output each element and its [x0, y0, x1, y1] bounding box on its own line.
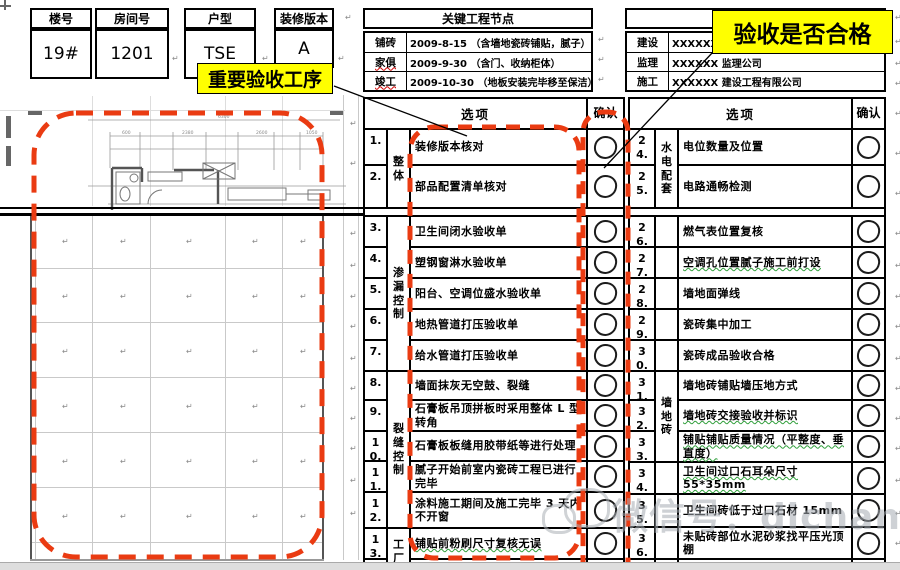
option-text: 墙地砖交接验收并标识: [679, 401, 853, 432]
wall-stub: [6, 116, 11, 138]
option-text: 墙面抹灰无空鼓、裂缝: [411, 372, 588, 401]
confirm-cell: [588, 372, 623, 401]
wall-stub: [6, 146, 11, 166]
confirm-circle[interactable]: [592, 372, 619, 399]
option-text: 空调孔位置腻子施工前打设: [679, 248, 853, 279]
paragraph-mark: ↵: [252, 458, 259, 466]
confirm-circle[interactable]: [592, 218, 619, 245]
unit-field-label: 装修版本: [274, 8, 334, 29]
svg-text:2600: 2600: [256, 130, 268, 136]
party-row: 施工XXXXXX 建设工程有限公司: [627, 71, 884, 90]
row-number: 3.: [365, 217, 388, 248]
group-label: [656, 341, 679, 372]
paragraph-mark: ↵: [895, 60, 900, 68]
page-break-band: [630, 209, 884, 217]
floor-plan-drawing: 6002380 26001050 6300: [78, 108, 353, 218]
row-number: 11.: [365, 462, 388, 493]
row-number: 2.: [365, 166, 388, 209]
paragraph-mark: ↵: [895, 355, 900, 363]
options-header: 选项: [365, 99, 588, 130]
paragraph-mark: ↵: [62, 513, 69, 521]
gridline: [30, 559, 324, 561]
gridline: [32, 487, 322, 488]
row-number: 33.: [630, 432, 656, 463]
confirm-circle[interactable]: [855, 497, 882, 524]
row-number: 29.: [630, 310, 656, 341]
unit-field-label: 户型: [184, 8, 256, 29]
option-text: 塑钢窗淋水验收单: [411, 248, 588, 279]
row-number: 32.: [630, 401, 656, 432]
paragraph-mark: ↵: [62, 348, 69, 356]
paragraph-mark: ↵: [598, 56, 605, 64]
group-label: [656, 310, 679, 341]
callout-important-process-label: 重要验收工序: [208, 65, 322, 92]
paragraph-mark: ↵: [186, 238, 193, 246]
confirm-cell: [853, 495, 884, 528]
party-role: 施工: [627, 72, 669, 90]
page-corner-mark: [4, 0, 6, 10]
milestone-value: 2009-10-30 （地板安装完毕移至保洁）: [407, 74, 591, 89]
confirm-header: 确认: [853, 99, 884, 130]
paragraph-mark: ↵: [895, 262, 900, 270]
paragraph-mark: ↵: [350, 323, 357, 331]
paragraph-mark: ↵: [895, 540, 900, 548]
confirm-circle[interactable]: [855, 372, 882, 399]
gridline: [32, 542, 322, 543]
confirm-cell: [853, 463, 884, 495]
paragraph-mark: ↵: [895, 415, 900, 423]
party-role: 建设: [627, 33, 669, 52]
option-text: 卫生间闭水验收单: [411, 217, 588, 248]
unit-field-value: 19#: [30, 29, 92, 79]
paragraph-mark: ↵: [300, 403, 307, 411]
group-label: [656, 463, 679, 495]
confirm-circle[interactable]: [855, 280, 882, 307]
confirm-cell: [588, 529, 623, 560]
paragraph-mark: ↵: [895, 190, 900, 198]
party-role: 监理: [627, 53, 669, 71]
milestones-title: 关键工程节点: [363, 8, 593, 29]
gridline: [92, 216, 93, 560]
gridline: [32, 432, 322, 433]
paragraph-mark: ↵: [62, 403, 69, 411]
wall-stub: [330, 111, 343, 115]
paragraph-mark: ↵: [62, 238, 69, 246]
confirm-cell: [853, 310, 884, 341]
paragraph-mark: ↵: [120, 293, 127, 301]
paragraph-mark: ↵: [895, 293, 900, 301]
confirm-cell: [588, 432, 623, 462]
options-header: 选项: [630, 99, 853, 130]
paragraph-mark: ↵: [895, 38, 900, 46]
svg-text:6300: 6300: [218, 114, 230, 120]
confirm-circle[interactable]: [592, 311, 619, 338]
group-label: [656, 528, 679, 560]
milestone-row: 家俱2009-9-30 （含门、收纳柜体）: [365, 52, 591, 71]
option-text: 未贴砖部位水泥砂浆找平压光顶棚: [679, 528, 853, 560]
section-divider-line: [0, 207, 363, 209]
confirm-cell: [588, 217, 623, 248]
confirm-cell: [853, 166, 884, 209]
paragraph-mark: ↵: [62, 293, 69, 301]
option-text: 部品配置清单核对: [411, 166, 588, 209]
paragraph-mark: ↵: [895, 510, 900, 518]
confirm-cell: [853, 432, 884, 463]
gridline: [35, 216, 36, 560]
option-text: 石膏板板缝用胶带纸等进行处理: [411, 432, 588, 462]
paragraph-mark: ↵: [895, 385, 900, 393]
option-text: 装修版本核对: [411, 130, 588, 166]
paragraph-mark: ↵: [895, 110, 900, 118]
paragraph-mark: ↵: [895, 14, 900, 22]
row-number: 10.: [365, 432, 388, 462]
paragraph-mark: ↵: [338, 55, 345, 63]
paragraph-mark: ↵: [350, 293, 357, 301]
confirm-cell: [853, 217, 884, 248]
confirm-cell: [853, 341, 884, 372]
confirm-cell: [588, 248, 623, 279]
paragraph-mark: ↵: [895, 323, 900, 331]
paragraph-mark: ↵: [345, 14, 352, 22]
group-label: [656, 495, 679, 528]
confirm-circle[interactable]: [592, 463, 619, 490]
row-number: 1.: [365, 130, 388, 166]
confirm-cell: [853, 528, 884, 560]
paragraph-mark: ↵: [172, 55, 179, 63]
confirm-circle[interactable]: [592, 134, 619, 161]
party-name: XXXXXX 监理公司: [669, 55, 884, 70]
confirm-circle[interactable]: [592, 433, 619, 460]
row-number: 30.: [630, 341, 656, 372]
unit-field-value: 1201: [95, 29, 169, 79]
paragraph-mark: ↵: [300, 458, 307, 466]
group-label: 整体: [388, 130, 411, 209]
confirm-cell: [588, 341, 623, 372]
confirm-cell: [588, 493, 623, 529]
option-text: 电路通畅检测: [679, 166, 853, 209]
group-label: 裂缝控制: [388, 372, 411, 529]
confirm-cell: [588, 462, 623, 493]
paragraph-mark: ↵: [120, 238, 127, 246]
confirm-circle[interactable]: [592, 402, 619, 429]
confirm-cell: [588, 166, 623, 209]
paragraph-mark: ↵: [895, 445, 900, 453]
callout-acceptance-pass-label: 验收是否合格: [734, 15, 872, 49]
confirm-circle[interactable]: [855, 433, 882, 460]
row-number: 27.: [630, 248, 656, 279]
milestone-row: 铺砖2009-8-15 （含墙地瓷砖铺贴，腻子）: [365, 33, 591, 52]
row-number: 26.: [630, 217, 656, 248]
milestones-table: 关键工程节点 铺砖2009-8-15 （含墙地瓷砖铺贴，腻子）家俱2009-9-…: [363, 8, 593, 92]
group-label: [656, 217, 679, 248]
paragraph-mark: ↵: [62, 458, 69, 466]
row-number: 25.: [630, 166, 656, 209]
gridline: [150, 216, 151, 560]
confirm-cell: [853, 279, 884, 310]
confirm-circle[interactable]: [592, 280, 619, 307]
gridline: [282, 216, 283, 560]
row-number: 24.: [630, 130, 656, 166]
paragraph-mark: ↵: [186, 293, 193, 301]
paragraph-mark: ↵: [252, 293, 259, 301]
gridline: [32, 268, 322, 269]
paragraph-mark: ↵: [252, 403, 259, 411]
group-label: [656, 279, 679, 310]
section-divider-line: [0, 213, 363, 216]
confirm-circle[interactable]: [592, 530, 619, 557]
paragraph-mark: ↵: [252, 513, 259, 521]
paragraph-mark: ↵: [350, 477, 357, 485]
option-text: 卫生间砖低于过口石材 15mm: [679, 495, 853, 528]
group-label: 水电配套: [656, 130, 679, 209]
row-number: 28.: [630, 279, 656, 310]
confirm-cell: [853, 130, 884, 166]
svg-text:2380: 2380: [182, 130, 194, 136]
option-text: 铺贴铺贴质量情况（平整度、垂直度）: [679, 432, 853, 463]
confirm-cell: [853, 248, 884, 279]
confirm-cell: [853, 401, 884, 432]
confirm-circle[interactable]: [855, 134, 882, 161]
paragraph-mark: ↵: [350, 385, 357, 393]
unit-field-label: 楼号: [30, 8, 92, 29]
document-page: ↵↵↵↵↵↵↵↵↵↵↵↵↵↵↵↵↵↵↵↵↵↵↵↵↵↵↵↵↵↵↵↵↵↵↵↵↵↵↵↵…: [0, 0, 900, 570]
paragraph-mark: ↵: [120, 513, 127, 521]
paragraph-mark: ↵: [598, 36, 605, 44]
gridline: [32, 377, 322, 378]
checklist-table: 选项确认整体渗漏控制裂缝控制工厂1.装修版本核对2.部品配置清单核对3.卫生间闭…: [363, 97, 625, 570]
option-text: 瓷砖集中加工: [679, 310, 853, 341]
confirm-circle[interactable]: [855, 311, 882, 338]
confirm-circle[interactable]: [592, 342, 619, 369]
paragraph-mark: ↵: [186, 348, 193, 356]
option-text: 阳台、空调位盛水验收单: [411, 279, 588, 310]
paragraph-mark: ↵: [598, 76, 605, 84]
confirm-circle[interactable]: [855, 342, 882, 369]
row-number: 31.: [630, 372, 656, 401]
milestone-label: 竣工: [365, 72, 407, 90]
confirm-circle[interactable]: [855, 530, 882, 557]
confirm-circle[interactable]: [592, 173, 619, 200]
paragraph-mark: ↵: [350, 415, 357, 423]
checklist-table: 选项确认水电配套墙地砖24.电位数量及位置25.电路通畅检测26.燃气表位置复核…: [628, 97, 886, 570]
confirm-cell: [588, 130, 623, 166]
row-number: 12.: [365, 493, 388, 529]
option-text: 腻子开始前室内瓷砖工程已进行完毕: [411, 462, 588, 493]
confirm-circle[interactable]: [855, 465, 882, 492]
paragraph-mark: ↵: [350, 262, 357, 270]
paragraph-mark: ↵: [262, 55, 269, 63]
confirm-cell: [853, 372, 884, 401]
paragraph-mark: ↵: [895, 230, 900, 238]
paragraph-mark: ↵: [186, 458, 193, 466]
paragraph-mark: ↵: [300, 348, 307, 356]
paragraph-mark: ↵: [895, 477, 900, 485]
group-label: 墙地砖: [656, 372, 679, 463]
milestone-label: 家俱: [365, 53, 407, 71]
paragraph-mark: ↵: [300, 293, 307, 301]
option-text: 给水管道打压验收单: [411, 341, 588, 372]
option-text: 卫生间过口石耳朵尺寸 55*35mm: [679, 463, 853, 495]
confirm-header: 确认: [588, 99, 623, 130]
paragraph-mark: ↵: [350, 355, 357, 363]
milestone-value: 2009-8-15 （含墙地瓷砖铺贴，腻子）: [407, 35, 591, 50]
paragraph-mark: ↵: [350, 510, 357, 518]
row-number: 13.: [365, 529, 388, 560]
gridline: [322, 216, 324, 560]
confirm-circle[interactable]: [855, 402, 882, 429]
option-text: 燃气表位置复核: [679, 217, 853, 248]
option-text: 涂料施工期间及施工完毕 3 天内不开窗: [411, 493, 588, 529]
svg-text:1050: 1050: [306, 130, 318, 136]
row-number: 8.: [365, 372, 388, 401]
paragraph-mark: ↵: [300, 238, 307, 246]
confirm-circle[interactable]: [855, 173, 882, 200]
option-text: 铺贴前粉刷尺寸复核无误: [411, 529, 588, 560]
row-number: 7.: [365, 341, 388, 372]
party-row: 监理XXXXXX 监理公司: [627, 52, 884, 71]
paragraph-mark: ↵: [120, 348, 127, 356]
row-number: 9.: [365, 401, 388, 432]
page-break-band: [365, 209, 623, 217]
confirm-circle[interactable]: [592, 497, 619, 524]
option-text: 墙地砖铺贴墙压地方式: [679, 372, 853, 401]
party-name: XXXXXX 建设工程有限公司: [669, 74, 884, 89]
group-label: 渗漏控制: [388, 217, 411, 372]
option-text: 墙地面弹线: [679, 279, 853, 310]
milestone-row: 竣工2009-10-30 （地板安装完毕移至保洁）: [365, 71, 591, 90]
confirm-cell: [588, 279, 623, 310]
paragraph-mark: ↵: [120, 458, 127, 466]
paragraph-mark: ↵: [186, 403, 193, 411]
gridline: [225, 216, 226, 560]
confirm-cell: [588, 310, 623, 341]
group-label: [656, 248, 679, 279]
wall-stub: [28, 111, 42, 115]
paragraph-mark: ↵: [252, 348, 259, 356]
confirm-circle[interactable]: [592, 249, 619, 276]
confirm-circle[interactable]: [855, 218, 882, 245]
paragraph-mark: ↵: [895, 80, 900, 88]
option-text: 电位数量及位置: [679, 130, 853, 166]
paragraph-mark: ↵: [350, 230, 357, 238]
callout-important-process: 重要验收工序: [197, 63, 333, 94]
callout-acceptance-pass: 验收是否合格: [712, 10, 893, 54]
paragraph-mark: ↵: [895, 150, 900, 158]
milestone-label: 铺砖: [365, 33, 407, 52]
confirm-circle[interactable]: [855, 249, 882, 276]
option-text: 石膏板吊顶拼板时采用整体 L 型转角: [411, 401, 588, 432]
gridline: [358, 95, 359, 560]
paragraph-mark: ↵: [350, 445, 357, 453]
row-number: 36.: [630, 528, 656, 560]
option-text: 地热管道打压验收单: [411, 310, 588, 341]
gridline: [30, 216, 32, 560]
gridline: [32, 322, 322, 323]
confirm-cell: [588, 401, 623, 432]
option-text: 瓷砖成品验收合格: [679, 341, 853, 372]
paragraph-mark: ↵: [252, 238, 259, 246]
row-number: 35.: [630, 495, 656, 528]
paragraph-mark: ↵: [120, 403, 127, 411]
row-number: 34.: [630, 463, 656, 495]
scrollbar-track[interactable]: [0, 562, 900, 570]
row-number: 4.: [365, 248, 388, 279]
row-number: 5.: [365, 279, 388, 310]
svg-text:600: 600: [122, 130, 131, 136]
milestone-value: 2009-9-30 （含门、收纳柜体）: [407, 55, 591, 70]
paragraph-mark: ↵: [186, 513, 193, 521]
unit-field-label: 房间号: [95, 8, 169, 29]
paragraph-mark: ↵: [300, 513, 307, 521]
row-number: 6.: [365, 310, 388, 341]
